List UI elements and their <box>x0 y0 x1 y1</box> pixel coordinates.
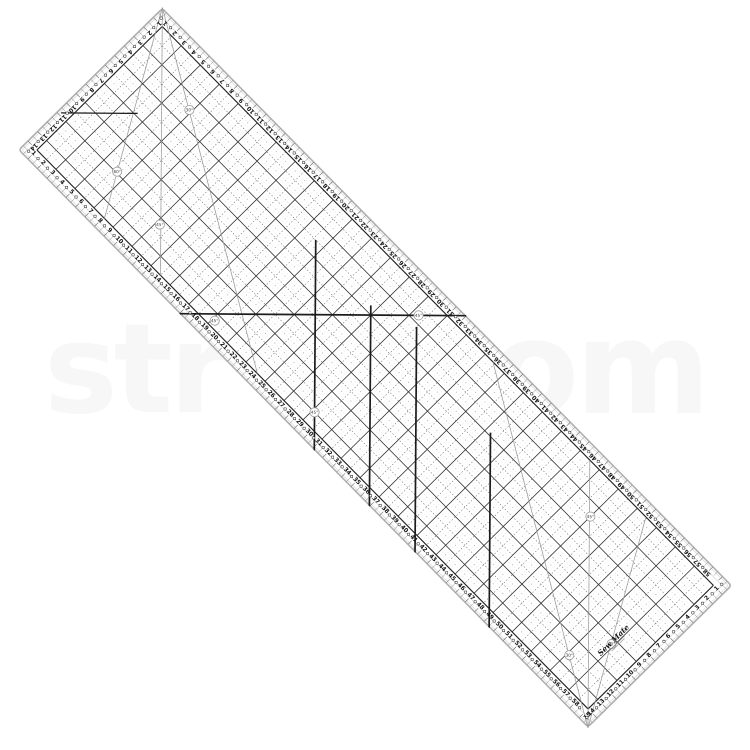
angle-label: 45° <box>211 318 218 323</box>
angle-label: 45° <box>311 410 318 415</box>
angle-label: 45° <box>156 222 163 227</box>
product-photo: str om 30°60°45°45°45°45°45°60°30°123456… <box>0 0 750 750</box>
angle-label: 45° <box>415 313 422 318</box>
angle-label: 30° <box>566 653 573 658</box>
angle-label: 45° <box>587 514 594 519</box>
angle-label: 30° <box>186 107 193 112</box>
angle-label: 60° <box>113 169 120 174</box>
